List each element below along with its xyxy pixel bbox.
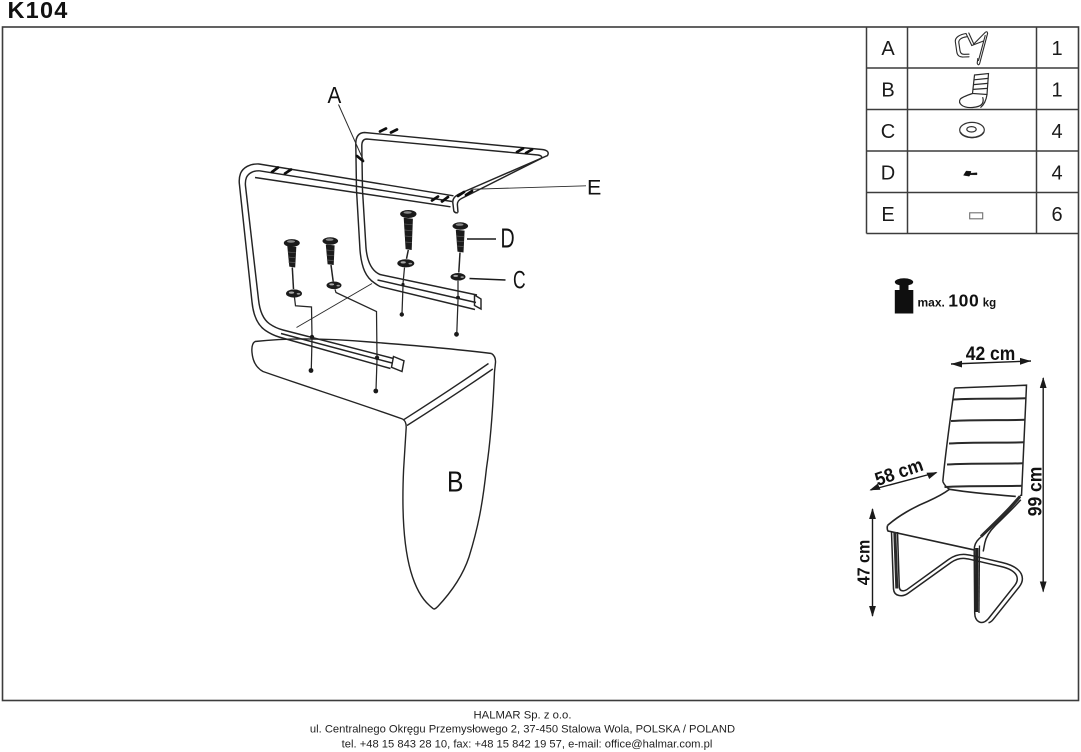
svg-text:42 cm: 42 cm bbox=[966, 342, 1016, 364]
svg-text:K104: K104 bbox=[8, 0, 69, 23]
svg-text:max. 100 kg: max. 100 kg bbox=[918, 291, 997, 311]
svg-text:C: C bbox=[881, 121, 895, 143]
svg-text:ul. Centralnego Okręgu Przemys: ul. Centralnego Okręgu Przemysłowego 2, … bbox=[310, 724, 735, 736]
svg-text:A: A bbox=[881, 38, 895, 60]
svg-text:tel. +48 15 843 28 10, fax: +4: tel. +48 15 843 28 10, fax: +48 15 842 1… bbox=[342, 739, 713, 751]
svg-text:B: B bbox=[881, 80, 894, 102]
svg-text:1: 1 bbox=[1051, 38, 1062, 60]
svg-text:99 cm: 99 cm bbox=[1024, 467, 1046, 517]
svg-text:4: 4 bbox=[1051, 163, 1062, 185]
svg-text:1: 1 bbox=[1051, 80, 1062, 102]
svg-text:E: E bbox=[587, 176, 601, 200]
svg-text:HALMAR Sp. z o.o.: HALMAR Sp. z o.o. bbox=[474, 710, 572, 722]
svg-text:A: A bbox=[328, 82, 342, 109]
svg-text:D: D bbox=[501, 223, 515, 254]
svg-text:C: C bbox=[513, 265, 526, 294]
svg-text:6: 6 bbox=[1051, 204, 1062, 226]
svg-text:B: B bbox=[447, 466, 463, 498]
svg-text:D: D bbox=[881, 163, 895, 185]
svg-text:47 cm: 47 cm bbox=[854, 540, 874, 586]
svg-text:E: E bbox=[881, 204, 894, 226]
svg-text:4: 4 bbox=[1051, 121, 1062, 143]
svg-text:58 cm: 58 cm bbox=[872, 453, 926, 490]
